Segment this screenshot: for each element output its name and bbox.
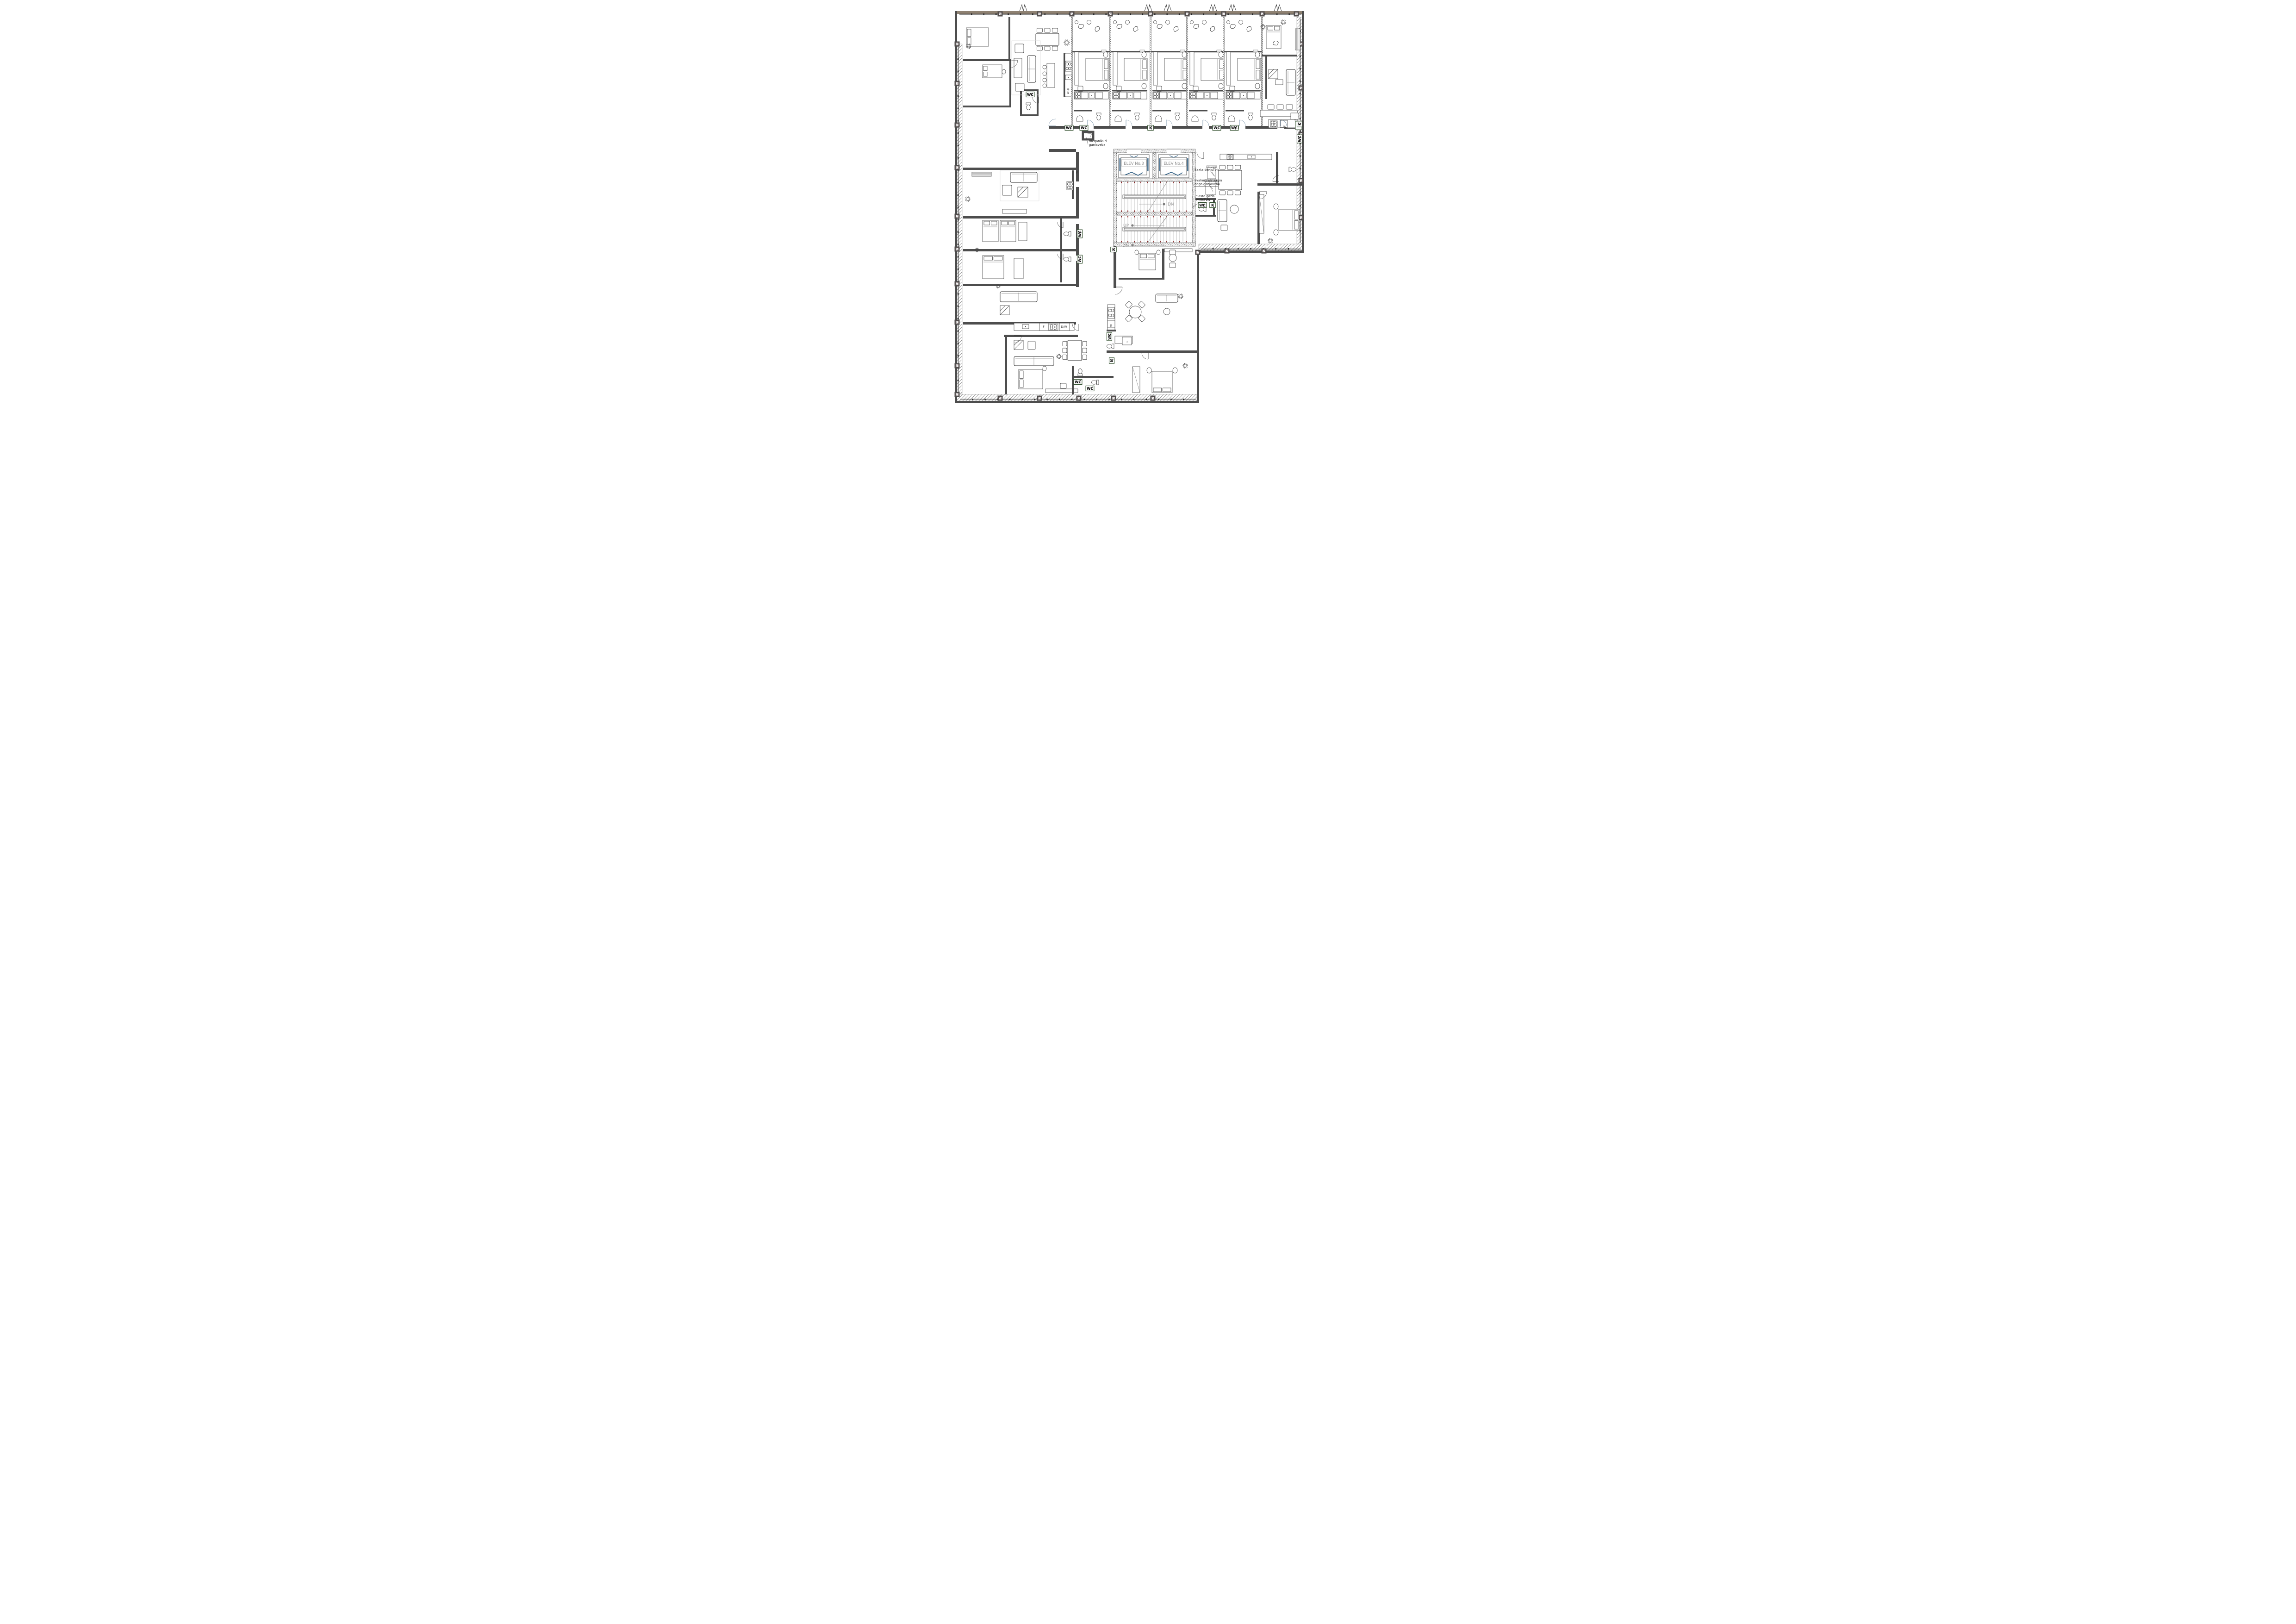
- elevator-4: ELEV No.4: [1158, 155, 1189, 178]
- balcony-partition: [1186, 17, 1188, 52]
- chair: [1235, 165, 1240, 169]
- chair: [1060, 383, 1066, 388]
- desk: [1113, 52, 1117, 85]
- balcony-divider-mark: [1020, 5, 1027, 11]
- chair: [1221, 225, 1227, 231]
- concrete-wall: [1152, 153, 1156, 180]
- chair: [1037, 46, 1042, 50]
- chair: [1063, 348, 1067, 353]
- concrete-wall: [1117, 212, 1192, 215]
- label-appliance-dw: D/W: [1061, 325, 1067, 329]
- concrete-wall: [1207, 166, 1217, 168]
- lounge-chair: [1209, 26, 1215, 32]
- door-arc: [1115, 287, 1122, 294]
- tv-console: [1002, 209, 1027, 213]
- chair: [1220, 165, 1225, 169]
- lounge-chair: [1078, 24, 1084, 29]
- floor-plan-canvas: ELEV No.3ELEV No.4 DNUPDNWCWCWCKWCWCKWCW…: [861, 0, 1435, 406]
- svg-text:kvalmsawinaagm: kvalmsawinaagm: [1195, 179, 1222, 182]
- svg-text:WC: WC: [1075, 380, 1081, 384]
- room-partition: [1109, 52, 1111, 126]
- chair: [1227, 191, 1233, 195]
- chair: [1028, 341, 1035, 350]
- svg-text:WD/: WD/: [1067, 88, 1070, 94]
- round-dining-table: [1129, 306, 1141, 318]
- chair: [1170, 250, 1176, 255]
- plant: [1260, 24, 1266, 29]
- label-appliance-f: F: [1294, 119, 1298, 121]
- plant: [1182, 363, 1188, 368]
- chair: [1277, 105, 1283, 109]
- desk: [1190, 52, 1194, 85]
- svg-text:W: W: [1283, 125, 1286, 129]
- svg-text:DN: DN: [1122, 244, 1129, 248]
- chair: [1063, 341, 1067, 346]
- shower: [1228, 116, 1235, 121]
- corridor-north-wall: [1172, 126, 1202, 129]
- svg-text:WC: WC: [1297, 136, 1301, 142]
- svg-text:DN: DN: [1168, 202, 1174, 207]
- svg-text:WC: WC: [1087, 387, 1093, 391]
- toilet: [1078, 369, 1083, 376]
- elevator-4-label: ELEV No.4: [1164, 162, 1184, 166]
- concrete-wall: [1192, 153, 1195, 246]
- door-arc: [1126, 120, 1132, 126]
- svg-text:W: W: [1110, 324, 1113, 327]
- balcony-divider-mark: [1274, 5, 1282, 11]
- svg-text:UP: UP: [1123, 224, 1129, 228]
- balcony-divider-mark: [1209, 5, 1217, 11]
- chair: [1170, 263, 1176, 268]
- svg-text:WC: WC: [1077, 256, 1082, 262]
- exterior-wall-step-vertical: [1197, 252, 1199, 403]
- svg-text:WC: WC: [1107, 333, 1111, 340]
- door-arc: [1049, 119, 1056, 126]
- balcony-divider-mark: [1229, 5, 1236, 11]
- toilet: [1107, 344, 1114, 349]
- terrace-wall: [1005, 336, 1007, 394]
- chair: [1125, 315, 1132, 322]
- door-arc: [1088, 120, 1094, 126]
- toilet: [1064, 231, 1071, 236]
- annotation-mech-vent: meqanikuriganiaveba: [1086, 137, 1107, 147]
- svg-text:ganiaveba: ganiaveba: [1089, 143, 1106, 147]
- label-wc: WC: [1297, 135, 1302, 143]
- chair: [1015, 83, 1024, 91]
- svg-text:D/W: D/W: [1061, 325, 1067, 329]
- plant: [1268, 238, 1273, 243]
- label-wc: WC: [1026, 92, 1034, 97]
- label-wc: WC: [1198, 203, 1207, 208]
- concrete-wall: [1117, 179, 1192, 181]
- plant: [1056, 354, 1062, 359]
- corridor-north-wall: [1094, 126, 1126, 129]
- drawing-sheet: ELEV No.3ELEV No.4 DNUPDNWCWCWCKWCWCKWCW…: [861, 0, 1435, 406]
- door-arc: [1142, 353, 1148, 359]
- dining-table: [1219, 170, 1242, 190]
- shower: [1115, 116, 1121, 121]
- toilet: [1289, 167, 1296, 172]
- dining-table: [1036, 33, 1059, 45]
- svg-text:აივანი: აივანი: [957, 203, 960, 212]
- chair: [1220, 191, 1225, 195]
- svg-text:WC: WC: [1027, 93, 1033, 97]
- svg-text:F: F: [1043, 325, 1045, 329]
- svg-text:milisTvis: milisTvis: [1196, 198, 1210, 202]
- toilet: [1248, 113, 1253, 120]
- concrete-wall: [1114, 149, 1195, 153]
- label-wc: WC: [1230, 125, 1238, 131]
- corridor-south-wall: [1049, 149, 1076, 152]
- door-arc: [1166, 120, 1172, 126]
- lounge-chair: [1094, 26, 1100, 32]
- room-partition: [1186, 52, 1188, 126]
- toilet: [1064, 257, 1071, 262]
- label-appliance-f: F: [1043, 325, 1045, 329]
- shower: [1155, 116, 1162, 121]
- annotation-balcony-georgian: აივანი: [957, 203, 960, 212]
- lounge-chair: [1157, 24, 1163, 29]
- label-appliance-f: F: [1076, 171, 1078, 175]
- svg-text:F: F: [1294, 119, 1298, 121]
- chair: [1138, 315, 1145, 322]
- label-k: K: [1110, 247, 1116, 252]
- chair: [1037, 28, 1042, 32]
- lounge-chair: [1116, 24, 1122, 29]
- chair: [1083, 348, 1087, 353]
- chair: [1235, 191, 1240, 195]
- kitchen-island: [1047, 63, 1055, 87]
- label-k: K: [1147, 125, 1153, 131]
- svg-text:WC: WC: [1077, 231, 1082, 237]
- toilet: [1096, 113, 1101, 120]
- door-arc: [1197, 152, 1204, 159]
- label-k: K: [1209, 203, 1215, 208]
- wardrobe: [1014, 258, 1023, 279]
- desk: [1164, 249, 1192, 252]
- lounge-chair: [1246, 26, 1252, 32]
- svg-text:dego ganiaveba: dego ganiaveba: [1195, 182, 1220, 186]
- chair: [1138, 301, 1145, 308]
- toilet: [1135, 113, 1139, 120]
- lounge-chair: [1193, 24, 1199, 29]
- label-wc: WC: [1107, 332, 1112, 341]
- svg-text:F: F: [1126, 341, 1128, 344]
- lounge-chair: [1230, 24, 1236, 29]
- chair: [1045, 28, 1050, 32]
- door-arc: [1239, 120, 1245, 126]
- toilet: [1091, 380, 1099, 385]
- stove: [1065, 61, 1071, 71]
- chair: [1268, 105, 1274, 109]
- wardrobe: [1019, 222, 1027, 241]
- svg-text:Saxta denisTvis: Saxta denisTvis: [1195, 168, 1220, 172]
- toilet: [1026, 103, 1031, 110]
- geometry-layer: ELEV No.3ELEV No.4: [954, 5, 1304, 403]
- svg-text:WC: WC: [1066, 126, 1072, 130]
- balcony-divider-mark: [1164, 5, 1171, 11]
- chair: [1125, 301, 1132, 308]
- label-appliance-f: F: [1126, 341, 1128, 344]
- room-partition: [1071, 52, 1072, 126]
- exterior-wall-top: [955, 11, 1304, 14]
- label-appliance-w: W: [1283, 125, 1286, 129]
- label-k: K: [1109, 358, 1114, 363]
- svg-text:meqanikuri: meqanikuri: [1089, 139, 1107, 143]
- plant: [965, 196, 971, 201]
- desk: [1153, 52, 1157, 85]
- stove: [1108, 307, 1114, 319]
- chair: [1063, 355, 1067, 360]
- exterior-wall-right-wing-bottom: [1199, 250, 1304, 253]
- label-wc: WC: [1086, 386, 1094, 391]
- concrete-wall: [1114, 153, 1117, 246]
- shower: [1192, 116, 1198, 121]
- label-wc: WC: [1065, 125, 1073, 131]
- balcony-divider-mark: [1145, 5, 1152, 11]
- elevator-3-label: ELEV No.3: [1124, 162, 1144, 166]
- plant: [1178, 294, 1183, 299]
- coffee-table: [1276, 80, 1283, 85]
- svg-text:Saxta gazis: Saxta gazis: [1196, 194, 1214, 198]
- label-wc: WC: [1074, 380, 1082, 385]
- chair: [1286, 105, 1293, 109]
- desk: [1075, 52, 1079, 85]
- door-arc: [1203, 120, 1209, 126]
- balcony-partition: [1223, 17, 1224, 52]
- chair: [1045, 46, 1050, 50]
- svg-text:WC: WC: [1231, 126, 1238, 130]
- chair: [1052, 28, 1058, 32]
- dining-table: [1068, 340, 1082, 361]
- label-wc: WC: [1077, 255, 1082, 263]
- svg-text:WC: WC: [1199, 203, 1206, 207]
- room-partition: [1150, 52, 1151, 126]
- corridor-east-wall-lower: [1114, 246, 1116, 288]
- stove: [1049, 324, 1058, 330]
- shower: [1076, 116, 1083, 121]
- chair: [1015, 44, 1024, 53]
- coffee-table: [1014, 58, 1022, 78]
- svg-text:WC: WC: [1081, 126, 1087, 130]
- chair: [1083, 355, 1087, 360]
- toilet: [1175, 113, 1180, 120]
- chair: [1083, 341, 1087, 346]
- toilet: [1212, 113, 1216, 120]
- label-appliance-w: W: [1110, 324, 1113, 327]
- lounge-chair: [1132, 26, 1139, 32]
- elevator-3: ELEV No.3: [1119, 155, 1149, 178]
- plant: [1281, 19, 1286, 25]
- svg-text:WC: WC: [1213, 126, 1220, 130]
- lounge-chair: [1173, 26, 1179, 32]
- balcony-partition: [1109, 17, 1111, 52]
- balcony-partition: [1150, 17, 1151, 52]
- balcony-partition: [1071, 17, 1072, 52]
- label-wc: WC: [1213, 125, 1221, 131]
- svg-text:F: F: [1076, 171, 1078, 175]
- label-appliance-wd: WD/: [1067, 88, 1070, 94]
- exterior-wall-bottom: [955, 401, 1199, 403]
- chair: [1227, 165, 1233, 169]
- chair: [1002, 185, 1012, 195]
- room-partition: [1223, 52, 1224, 126]
- label-wc: WC: [1077, 230, 1082, 238]
- plant: [1064, 39, 1070, 45]
- desk: [1226, 52, 1231, 85]
- chair: [1052, 46, 1058, 50]
- label-wc: WC: [1080, 125, 1088, 131]
- label-k: K: [1297, 121, 1302, 127]
